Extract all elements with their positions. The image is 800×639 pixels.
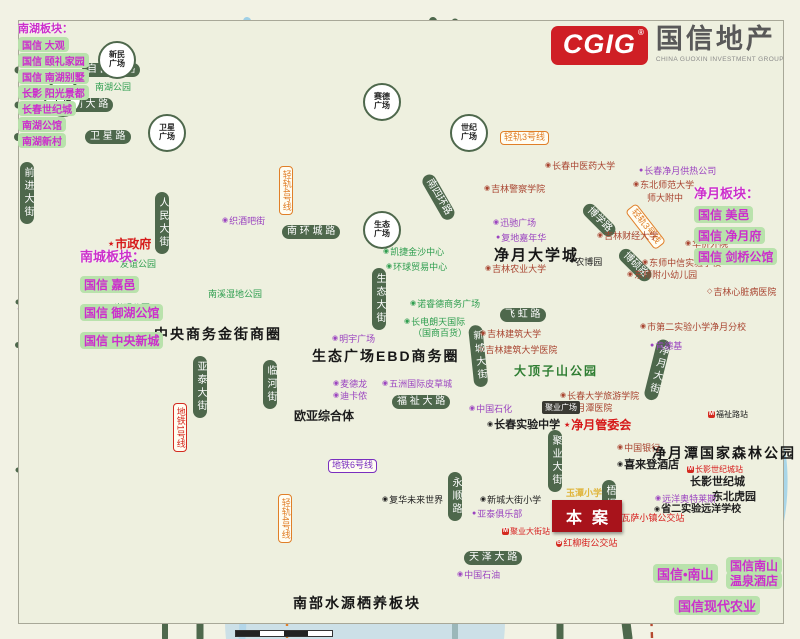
poi-label: ◉中国石化 [469, 404, 512, 414]
zone-label: 生态广场EBD商务圈 [312, 346, 460, 366]
poi-name: 织酒吧街 [229, 216, 265, 226]
diamond-icon: ◇ [707, 288, 712, 296]
poi-icon: ◉ [383, 248, 389, 256]
road-name-label: 前进大街 [20, 162, 34, 224]
poi-name: 吉林警察学院 [491, 184, 545, 194]
diamond-icon: ◇ [479, 346, 484, 354]
poi-name: 长电朗天国际 [411, 317, 465, 327]
district-block: 南城板块：国信 嘉邑国信 御湖公馆国信 中央新城 [80, 246, 163, 349]
poi-name: 东北师范大学 [640, 180, 694, 190]
logo: CGIG ® 国信地产 CHINA GUOXIN INVESTMENT GROU… [551, 26, 784, 65]
plaza-circle: 世纪广场 [450, 114, 488, 152]
junction-badge: 聚业广场 [542, 401, 580, 414]
poi-label: ◉远洋奥特莱斯 [655, 494, 716, 504]
poi-name: 玉潭小学 [566, 488, 602, 498]
dot-icon: ● [472, 510, 476, 518]
poi-name: 凯捷金沙中心 [390, 247, 444, 257]
project-pill: 国信 大观 [18, 37, 69, 52]
project-pill: 国信 嘉邑 [80, 276, 139, 293]
poi-name: 南湖公园 [95, 82, 131, 92]
road-name-label: 福 祉 大 路 [392, 395, 450, 409]
poi-icon: ◉ [457, 571, 463, 579]
metro-icon: M [502, 528, 509, 535]
plaza-name: 新民广场 [108, 51, 126, 69]
poi-label: B红柳街公交站 [556, 538, 617, 548]
poi-name: 吉林心脏病医院 [713, 287, 776, 297]
poi-name: 中国石化 [476, 404, 512, 414]
poi-label: ◉麦德龙 [333, 379, 367, 389]
metro-icon: M [687, 466, 694, 473]
poi-label: ◉迅驰广场 [493, 218, 536, 228]
road-name-label: 人民大街 [155, 192, 169, 254]
poi-icon: ◉ [222, 217, 228, 225]
poi-name: 瓦萨小镇公交站 [621, 513, 684, 523]
poi-name: 复地嘉年华 [501, 233, 546, 243]
poi-name: 诺睿德商务广场 [417, 299, 480, 309]
district-block: 净月板块：国信 美邑国信 净月府国信 剑桥公馆 [694, 183, 777, 265]
road-name-label: 卫 星 路 [85, 130, 131, 144]
poi-label: M福祉路站 [708, 410, 748, 419]
poi-icon: ◉ [655, 495, 661, 503]
poi-label: ◉长电朗天国际 [404, 317, 465, 327]
project-pill: 国信 剑桥公馆 [694, 248, 777, 265]
poi-name: 东师附小幼儿园 [634, 270, 697, 280]
poi-name: 长影世纪城 [690, 476, 745, 489]
poi-name: 迪卡侬 [340, 391, 367, 401]
poi-label: ●肯德基 [650, 341, 682, 351]
poi-name: 红柳街公交站 [563, 538, 617, 548]
logo-text: CGIG [563, 29, 636, 59]
poi-label: ◉东北师范大学 [633, 180, 694, 190]
plaza-name: 卫星广场 [158, 124, 176, 142]
poi-name: 吉林财经大学 [604, 231, 658, 241]
poi-name: 师大附中 [647, 193, 683, 203]
road-name-label: 天 泽 大 路 [464, 551, 522, 565]
district-block: 南湖板块：国信 大观国信 颐礼家园国信 南湖别墅长影 阳光景都长春世纪城南湖公馆… [18, 20, 89, 148]
dot-icon: ● [639, 167, 643, 175]
poi-icon: ◉ [333, 380, 339, 388]
poi-label: 东北虎园 [712, 491, 756, 504]
road-name-label: 飞 虹 路 [500, 308, 546, 322]
poi-label: ◉环球贸易中心 [386, 262, 447, 272]
poi-name: 中国银行 [624, 443, 660, 453]
poi-name: 新城大街小学 [487, 495, 541, 505]
metro-icon: M [708, 411, 715, 418]
poi-icon: ◉ [382, 496, 388, 504]
poi-label: ◉长春实验中学 [487, 419, 560, 432]
poi-label: 南湖公园 [95, 82, 131, 92]
poi-name: 农博园 [575, 257, 602, 267]
poi-name: 长春中医药大学 [552, 161, 615, 171]
poi-label: M长影世纪城站 [687, 465, 743, 474]
scale-bar [235, 630, 333, 637]
poi-label: ●长春净月供热公司 [639, 166, 716, 176]
poi-label: ◉长春中医药大学 [545, 161, 615, 171]
project-site-marker: 本案 [552, 500, 622, 532]
poi-name: 明宇广场 [339, 334, 375, 344]
poi-label: ◇吉林建筑大学医院 [479, 345, 557, 355]
poi-label: 长影世纪城 [690, 476, 745, 489]
poi-name: 欧亚综合体 [294, 410, 354, 424]
poi-label: ◉凯捷金沙中心 [383, 247, 444, 257]
poi-icon: ◉ [386, 263, 392, 271]
road-name-label: 南 环 城 路 [282, 225, 340, 239]
poi-name: 中国石油 [464, 570, 500, 580]
road-name-label: 生态大街 [372, 268, 386, 330]
poi-name: 喜来登酒店 [624, 459, 679, 472]
project-pill: 国信 美邑 [694, 206, 753, 223]
poi-name: 麦德龙 [340, 379, 367, 389]
poi-icon: ◉ [617, 444, 623, 452]
poi-icon: ◉ [642, 259, 648, 267]
poi-name: 吉林建筑大学医院 [485, 345, 557, 355]
star-icon: ★ [564, 422, 570, 430]
poi-label: 师大附中 [647, 193, 683, 203]
poi-name: 市第二实验小学净月分校 [647, 322, 746, 332]
poi-name: 长春大学旅游学院 [567, 391, 639, 401]
poi-name: 聚业大街站 [510, 527, 550, 536]
zone-label: 大顶子山公园 [514, 362, 598, 379]
poi-name: 复华未来世界 [389, 495, 443, 505]
plaza-name: 世纪广场 [460, 124, 478, 142]
road-name-label: 亚泰大街 [193, 356, 207, 418]
poi-label: ◉市第二实验小学净月分校 [640, 322, 746, 332]
poi-name: 吉林建筑大学 [487, 329, 541, 339]
poi-label: ●亚泰俱乐部 [472, 509, 522, 519]
transit-line-label: 轻轨4号线 [279, 166, 293, 215]
poi-label: ◉中国石油 [457, 570, 500, 580]
district-block-title: 净月板块： [694, 183, 759, 202]
poi-label: ◉吉林建筑大学 [480, 329, 541, 339]
poi-name: 长春净月供热公司 [644, 166, 716, 176]
project-pill: 长春世纪城 [18, 101, 76, 116]
plaza-circle: 新民广场 [98, 41, 136, 79]
project-pill: 国信•南山 [653, 564, 718, 583]
poi-icon: ◉ [597, 232, 603, 240]
project-pill: 国信 净月府 [694, 227, 765, 244]
project-pill: 国信现代农业 [674, 596, 760, 615]
poi-name: 月潭医院 [576, 403, 612, 413]
transit-line-label: 地铁6号线 [328, 459, 377, 473]
poi-label: ◉吉林农业大学 [485, 264, 546, 274]
transit-line-label: 地铁1号线 [173, 403, 187, 452]
poi-label: ◉新城大街小学 [480, 495, 541, 505]
road-name-label: 聚业大街 [548, 430, 562, 492]
project-pill: 国信 颐礼家园 [18, 53, 89, 68]
district-block-title: 南湖板块： [18, 20, 73, 36]
poi-label: 南溪湿地公园 [208, 289, 262, 299]
poi-name: 五洲国际皮草城 [389, 379, 452, 389]
plaza-circle: 赛德广场 [363, 83, 401, 121]
poi-name: 长春实验中学 [494, 419, 560, 432]
plaza-circle: 生态广场 [363, 211, 401, 249]
poi-name: 东北虎园 [712, 491, 756, 504]
project-pill: 长影 阳光景都 [18, 85, 89, 100]
registered-mark: ® [638, 28, 645, 37]
company-name-cn: 国信地产 [656, 26, 784, 53]
road-name-label: 永顺路 [448, 472, 462, 521]
dot-icon: ● [650, 342, 654, 350]
logo-wordmark: 国信地产 CHINA GUOXIN INVESTMENT GROUP [656, 26, 784, 63]
poi-icon: ◉ [469, 405, 475, 413]
poi-label: （国商百货） [413, 328, 467, 338]
poi-icon: ◉ [633, 181, 639, 189]
poi-label: ◉吉林财经大学 [597, 231, 658, 241]
poi-icon: ◉ [410, 300, 416, 308]
poi-label: ◉长春大学旅游学院 [560, 391, 639, 401]
poi-icon: ◉ [487, 421, 493, 429]
poi-name: （国商百货） [413, 328, 467, 338]
project-pill: 温泉酒店 [726, 572, 782, 589]
poi-name: 吉林农业大学 [492, 264, 546, 274]
poi-icon: ◉ [480, 496, 486, 504]
poi-name: 迅驰广场 [500, 218, 536, 228]
poi-name: 长影世纪城站 [695, 465, 743, 474]
location-map: 中央商务金街商圈生态广场EBD商务圈净月大学城净月潭国家森林公园南部水源栖养板块… [0, 0, 800, 639]
poi-label: ◉织酒吧街 [222, 216, 265, 226]
poi-icon: ◉ [627, 271, 633, 279]
transit-line-label: 轻轨4号线 [278, 494, 292, 543]
poi-label: ◉诺睿德商务广场 [410, 299, 480, 309]
poi-label: ●农博园 [570, 257, 602, 267]
dot-icon: ● [496, 234, 500, 242]
poi-label: ◉喜来登酒店 [617, 459, 679, 472]
project-pill: 南湖公馆 [18, 117, 66, 132]
poi-label: ◉中国银行 [617, 443, 660, 453]
poi-icon: ◉ [493, 219, 499, 227]
project-pill: 国信 御湖公馆 [80, 304, 163, 321]
company-name-en: CHINA GUOXIN INVESTMENT GROUP [656, 56, 784, 63]
zone-label: 南部水源栖养板块 [293, 593, 421, 613]
poi-icon: ◉ [484, 185, 490, 193]
zone-label: 净月大学城 [494, 244, 579, 265]
project-pill: 南湖新村 [18, 133, 66, 148]
poi-label: ◉明宇广场 [332, 334, 375, 344]
poi-label: ●复地嘉年华 [496, 233, 546, 243]
poi-label: ★净月管委会 [564, 419, 631, 433]
poi-label: ◉东师附小幼儿园 [627, 270, 697, 280]
poi-icon: ◉ [617, 461, 623, 469]
poi-icon: ◉ [560, 392, 566, 400]
district-block-title: 南城板块： [80, 246, 145, 265]
poi-name: 福祉路站 [716, 410, 748, 419]
poi-label: ◉迪卡侬 [333, 391, 367, 401]
poi-label: 欧亚综合体 [294, 410, 354, 424]
poi-label: B瓦萨小镇公交站 [614, 513, 684, 523]
bus-icon: B [556, 540, 562, 547]
poi-icon: ◉ [480, 330, 486, 338]
poi-label: ◉复华未来世界 [382, 495, 443, 505]
project-pill: 国信 中央新城 [80, 332, 163, 349]
poi-icon: ◉ [485, 265, 491, 273]
poi-name: 亚泰俱乐部 [477, 509, 522, 519]
zone-label: 中央商务金街商圈 [154, 324, 282, 344]
poi-name: 远洋奥特莱斯 [662, 494, 716, 504]
plaza-circle: 卫星广场 [148, 114, 186, 152]
poi-label: ◉吉林警察学院 [484, 184, 545, 194]
poi-icon: ◉ [545, 162, 551, 170]
poi-icon: ◉ [382, 380, 388, 388]
poi-label: ◇吉林心脏病医院 [707, 287, 776, 297]
poi-label: 玉潭小学 [566, 488, 602, 498]
poi-name: 环球贸易中心 [393, 262, 447, 272]
cgig-logo-mark: CGIG ® [551, 26, 648, 65]
road-name-label: 临河街 [263, 360, 277, 409]
project-pill: 国信 南湖别墅 [18, 69, 89, 84]
plaza-name: 生态广场 [373, 221, 391, 239]
transit-line-label: 轻轨3号线 [500, 131, 549, 145]
plaza-name: 赛德广场 [373, 93, 391, 111]
poi-icon: ◉ [685, 240, 691, 248]
poi-name: 净月管委会 [571, 419, 631, 433]
poi-label: M聚业大街站 [502, 527, 550, 536]
poi-icon: ◉ [640, 323, 646, 331]
poi-name: 南溪湿地公园 [208, 289, 262, 299]
poi-icon: ◉ [404, 318, 410, 326]
poi-icon: ◉ [333, 392, 339, 400]
poi-label: ◉五洲国际皮草城 [382, 379, 452, 389]
poi-name: 肯德基 [655, 341, 682, 351]
dot-icon: ● [570, 258, 574, 266]
poi-icon: ◉ [332, 335, 338, 343]
